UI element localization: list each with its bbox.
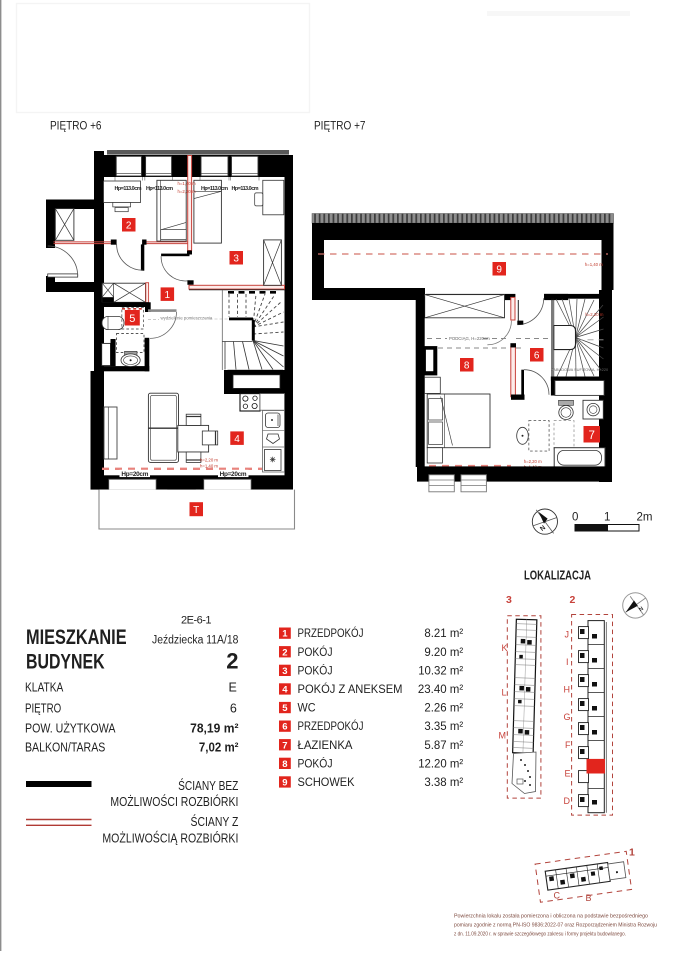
svg-text:3: 3 bbox=[506, 594, 512, 606]
svg-text:J: J bbox=[565, 630, 570, 640]
svg-text:h=2,20 m: h=2,20 m bbox=[200, 458, 218, 463]
svg-text:POW. UŻYTKOWA: POW. UŻYTKOWA bbox=[25, 722, 116, 736]
svg-text:0: 0 bbox=[572, 512, 578, 524]
svg-text:9: 9 bbox=[496, 264, 502, 275]
svg-text:3.38 m²: 3.38 m² bbox=[424, 775, 463, 789]
svg-text:4: 4 bbox=[234, 434, 240, 445]
svg-text:h=1,40 m: h=1,40 m bbox=[585, 262, 603, 267]
svg-text:9.20 m²: 9.20 m² bbox=[424, 645, 463, 659]
svg-text:7: 7 bbox=[282, 740, 287, 751]
svg-text:ŚCIANY Z: ŚCIANY Z bbox=[191, 814, 239, 829]
svg-text:Hp=113.0cm: Hp=113.0cm bbox=[115, 186, 142, 192]
svg-text:78,19 m²: 78,19 m² bbox=[190, 721, 239, 736]
svg-text:Hp=113.0cm: Hp=113.0cm bbox=[146, 186, 173, 192]
svg-text:Hp=20cm: Hp=20cm bbox=[121, 471, 148, 478]
svg-text:2: 2 bbox=[570, 594, 576, 606]
svg-text:6: 6 bbox=[282, 722, 287, 733]
svg-text:2E-6-1: 2E-6-1 bbox=[181, 615, 212, 627]
svg-text:SCHOWEK: SCHOWEK bbox=[298, 775, 355, 789]
svg-text:23.40 m²: 23.40 m² bbox=[418, 682, 463, 696]
svg-text:PIĘTRO: PIĘTRO bbox=[25, 702, 61, 716]
svg-text:Hp=113.0cm: Hp=113.0cm bbox=[201, 186, 228, 192]
svg-text:PODCIĄG, H=220cm: PODCIĄG, H=220cm bbox=[449, 336, 490, 341]
svg-text:MIESZKANIE: MIESZKANIE bbox=[26, 626, 127, 649]
svg-text:POKÓJ: POKÓJ bbox=[298, 662, 333, 677]
svg-text:h=2,20 m: h=2,20 m bbox=[585, 312, 603, 317]
svg-text:POKÓJ: POKÓJ bbox=[298, 644, 333, 659]
svg-text:Jeździecka 11A/18: Jeździecka 11A/18 bbox=[152, 635, 238, 647]
svg-text:ZABUDOWA SUFITOWA, H=220: ZABUDOWA SUFITOWA, H=220 bbox=[551, 367, 609, 372]
svg-text:I: I bbox=[566, 657, 569, 667]
svg-text:2: 2 bbox=[282, 647, 287, 658]
svg-text:h=2,20 m: h=2,20 m bbox=[178, 189, 196, 194]
svg-text:pomiaru zgodnie z normą PN-ISO: pomiaru zgodnie z normą PN-ISO 9836:2022… bbox=[454, 923, 657, 929]
svg-text:8: 8 bbox=[464, 360, 470, 371]
svg-text:POKÓJ: POKÓJ bbox=[298, 755, 333, 770]
svg-text:4: 4 bbox=[282, 685, 288, 696]
svg-text:D: D bbox=[564, 796, 571, 806]
svg-text:MOŻLIWOŚCI ROZBIÓRKI: MOŻLIWOŚCI ROZBIÓRKI bbox=[110, 794, 238, 809]
svg-text:5.87 m²: 5.87 m² bbox=[424, 738, 463, 752]
svg-text:3: 3 bbox=[282, 666, 287, 677]
svg-text:PRZEDPOKÓJ: PRZEDPOKÓJ bbox=[298, 625, 364, 640]
svg-text:5: 5 bbox=[282, 703, 288, 714]
svg-text:8.21 m²: 8.21 m² bbox=[424, 626, 463, 640]
svg-text:B: B bbox=[586, 893, 592, 903]
svg-text:1: 1 bbox=[165, 290, 171, 301]
svg-text:h=1,40 m: h=1,40 m bbox=[200, 464, 218, 469]
svg-text:Powierzchnia lokalu została po: Powierzchnia lokalu została pomierzona i… bbox=[454, 914, 648, 920]
svg-text:L: L bbox=[502, 688, 507, 698]
svg-text:C: C bbox=[554, 891, 561, 901]
svg-text:z dn. 11.09.2020 r. w sprawie: z dn. 11.09.2020 r. w sprawie szczegółow… bbox=[454, 932, 626, 938]
svg-text:6: 6 bbox=[534, 350, 540, 361]
svg-text:T: T bbox=[193, 505, 199, 516]
svg-text:WC: WC bbox=[298, 701, 316, 715]
svg-text:PIĘTRO +7: PIĘTRO +7 bbox=[314, 119, 366, 133]
svg-text:1: 1 bbox=[604, 512, 610, 524]
svg-text:LOKALIZACJA: LOKALIZACJA bbox=[524, 568, 591, 583]
svg-text:1: 1 bbox=[629, 847, 635, 859]
svg-text:PRZEDPOKÓJ: PRZEDPOKÓJ bbox=[298, 718, 364, 733]
svg-text:KLATKA: KLATKA bbox=[25, 680, 64, 694]
svg-text:G: G bbox=[564, 712, 571, 722]
svg-text:2: 2 bbox=[226, 648, 238, 673]
svg-text:8: 8 bbox=[282, 759, 287, 770]
svg-text:BALKON/TARAS: BALKON/TARAS bbox=[25, 741, 105, 755]
svg-text:wydzielenie pomieszczenia: wydzielenie pomieszczenia bbox=[161, 315, 213, 320]
svg-text:M: M bbox=[499, 731, 507, 741]
svg-text:E: E bbox=[565, 769, 571, 779]
svg-text:PIĘTRO +6: PIĘTRO +6 bbox=[50, 119, 102, 133]
svg-text:E: E bbox=[228, 680, 236, 694]
svg-text:K: K bbox=[502, 643, 508, 653]
svg-text:3.35 m²: 3.35 m² bbox=[424, 719, 463, 733]
svg-text:10.32 m²: 10.32 m² bbox=[418, 663, 463, 677]
svg-text:3: 3 bbox=[233, 253, 239, 264]
svg-text:2m: 2m bbox=[637, 512, 653, 524]
svg-text:ŁAZIENKA: ŁAZIENKA bbox=[298, 738, 353, 752]
svg-text:12.20 m²: 12.20 m² bbox=[418, 756, 463, 770]
svg-text:F: F bbox=[565, 740, 571, 750]
svg-text:POKÓJ Z ANEKSEM: POKÓJ Z ANEKSEM bbox=[298, 681, 403, 696]
svg-text:ŚCIANY BEZ: ŚCIANY BEZ bbox=[178, 778, 239, 793]
svg-text:H: H bbox=[564, 685, 571, 695]
svg-text:6: 6 bbox=[230, 702, 237, 716]
svg-text:7,02 m²: 7,02 m² bbox=[199, 740, 239, 755]
svg-text:h=1,40 m: h=1,40 m bbox=[178, 181, 196, 186]
svg-text:5: 5 bbox=[129, 313, 135, 325]
svg-text:h=2,20 m: h=2,20 m bbox=[524, 459, 542, 464]
svg-text:7: 7 bbox=[588, 430, 594, 442]
svg-text:1: 1 bbox=[282, 629, 288, 640]
svg-text:9: 9 bbox=[282, 778, 287, 789]
svg-text:Hp=113.0cm: Hp=113.0cm bbox=[232, 186, 259, 192]
svg-text:BUDYNEK: BUDYNEK bbox=[26, 650, 105, 673]
svg-text:2.26 m²: 2.26 m² bbox=[424, 701, 463, 715]
svg-text:MOŻLIWOŚCIĄ ROZBIÓRKI: MOŻLIWOŚCIĄ ROZBIÓRKI bbox=[102, 831, 238, 846]
svg-text:Hp=20cm: Hp=20cm bbox=[220, 471, 247, 478]
svg-text:2: 2 bbox=[126, 220, 132, 231]
